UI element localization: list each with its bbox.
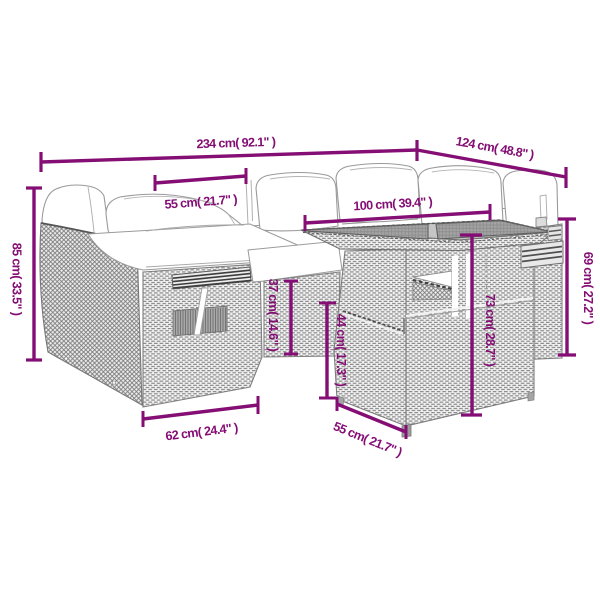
svg-text:85 cm( 33.5" ): 85 cm( 33.5" ) bbox=[10, 243, 24, 316]
svg-text:44 cm( 17.3" ): 44 cm( 17.3" ) bbox=[334, 314, 348, 387]
svg-text:37 cm( 14.6" ): 37 cm( 14.6" ) bbox=[266, 279, 280, 352]
svg-text:69 cm( 27.2" ): 69 cm( 27.2" ) bbox=[581, 252, 595, 325]
svg-text:234 cm( 92.1" ): 234 cm( 92.1" ) bbox=[196, 135, 276, 151]
svg-text:73 cm( 28.7" ): 73 cm( 28.7" ) bbox=[483, 294, 497, 367]
